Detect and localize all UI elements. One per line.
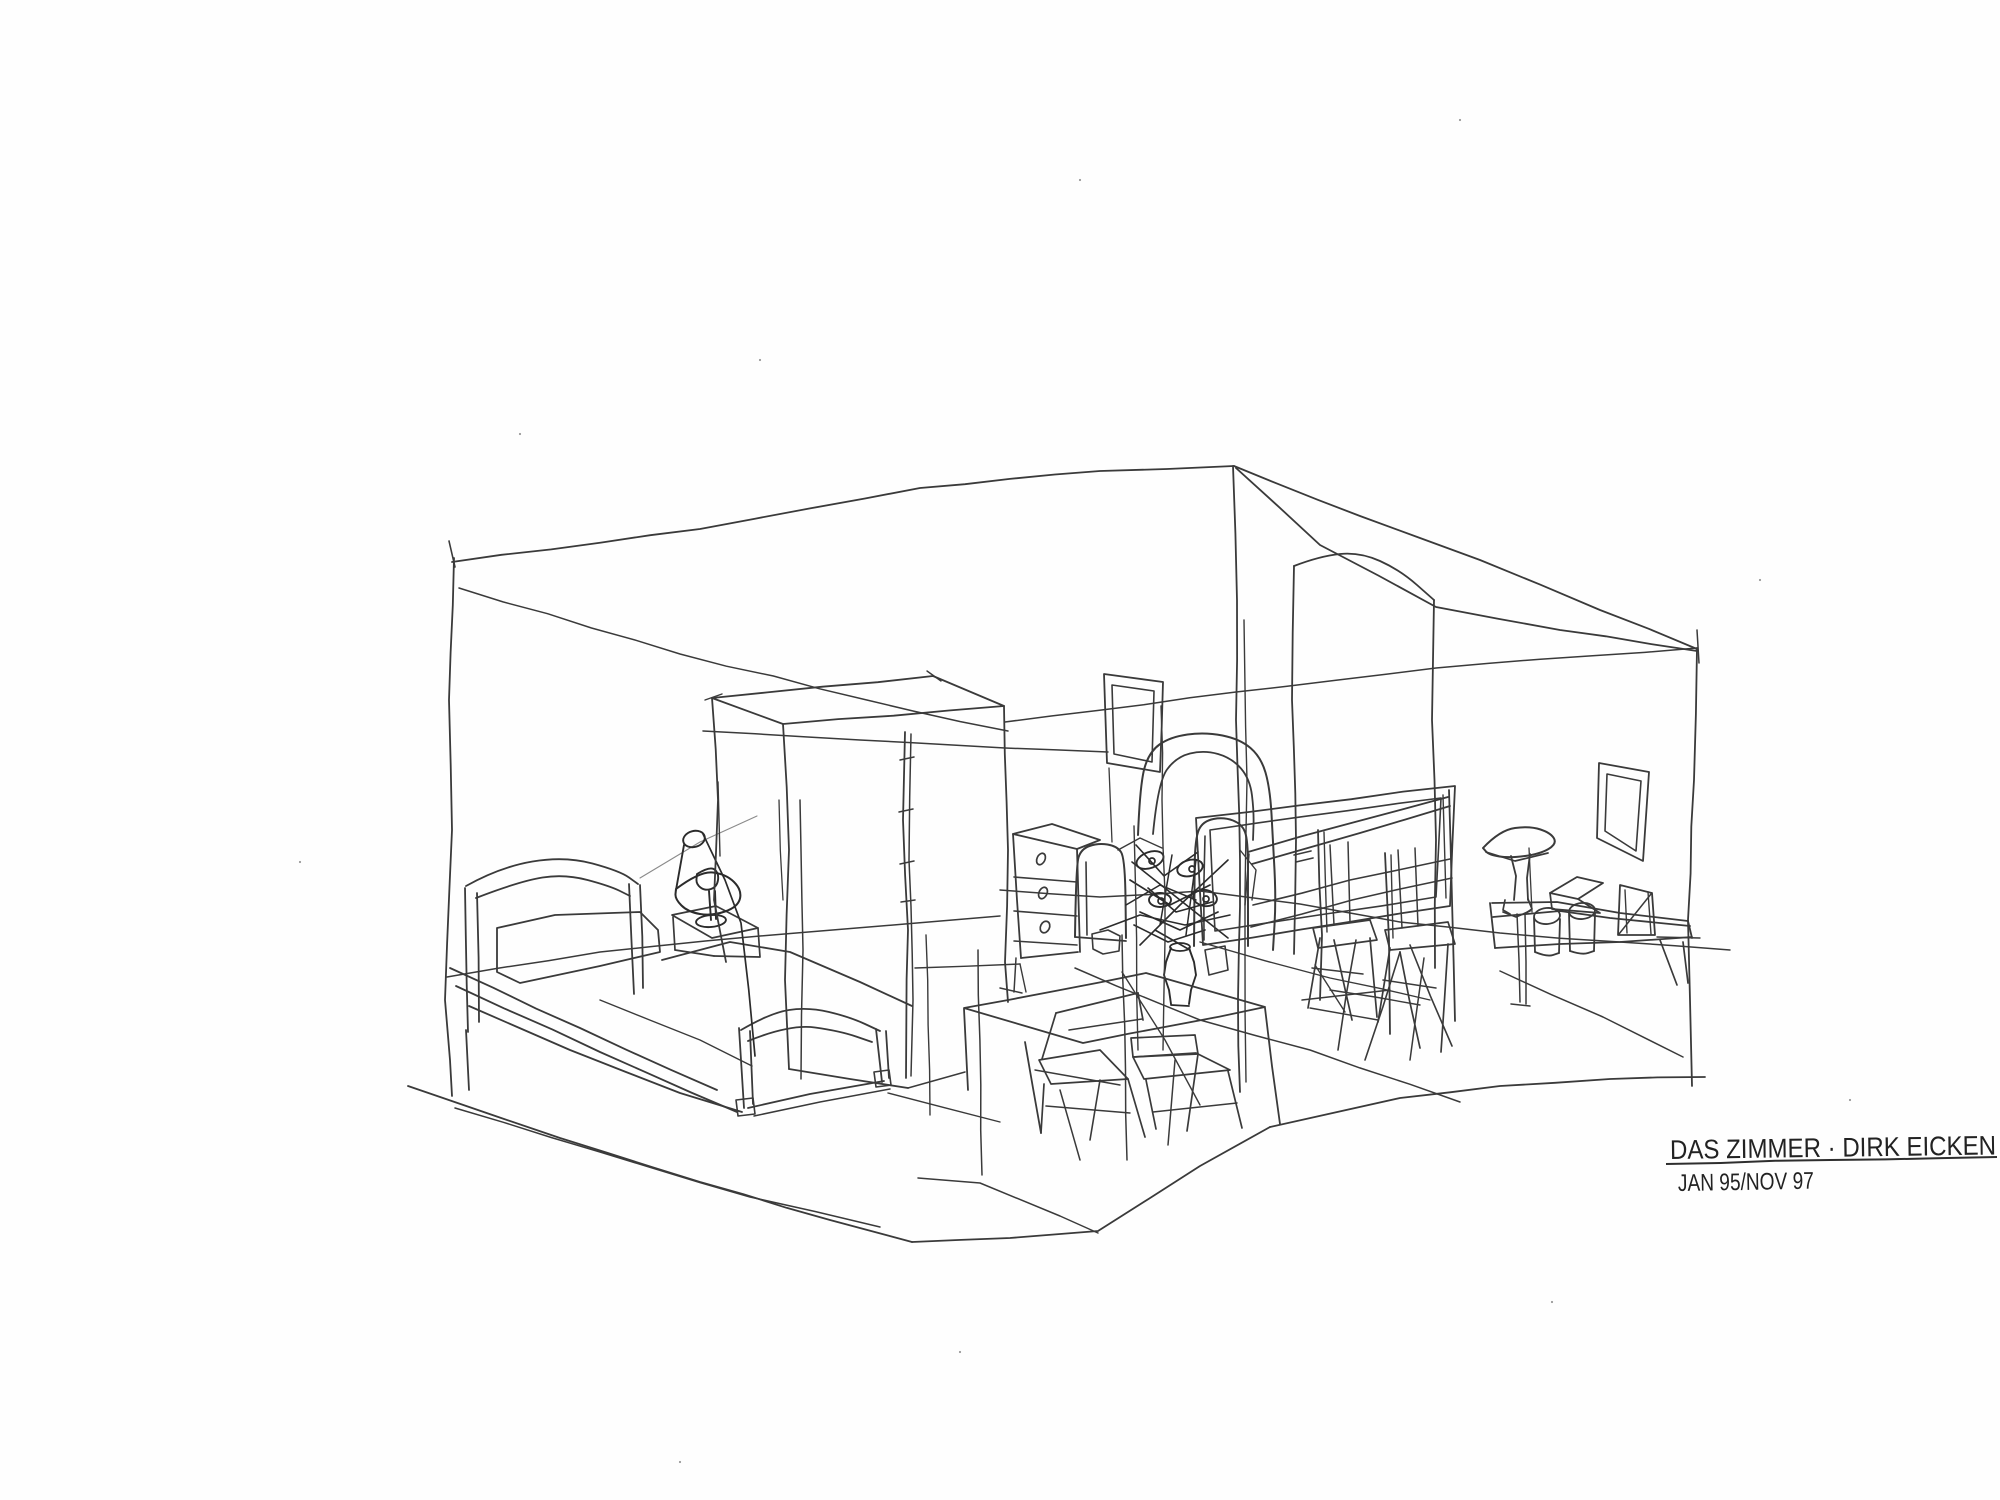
svg-text:JAN 95/NOV 97: JAN 95/NOV 97 <box>1678 1168 1814 1197</box>
